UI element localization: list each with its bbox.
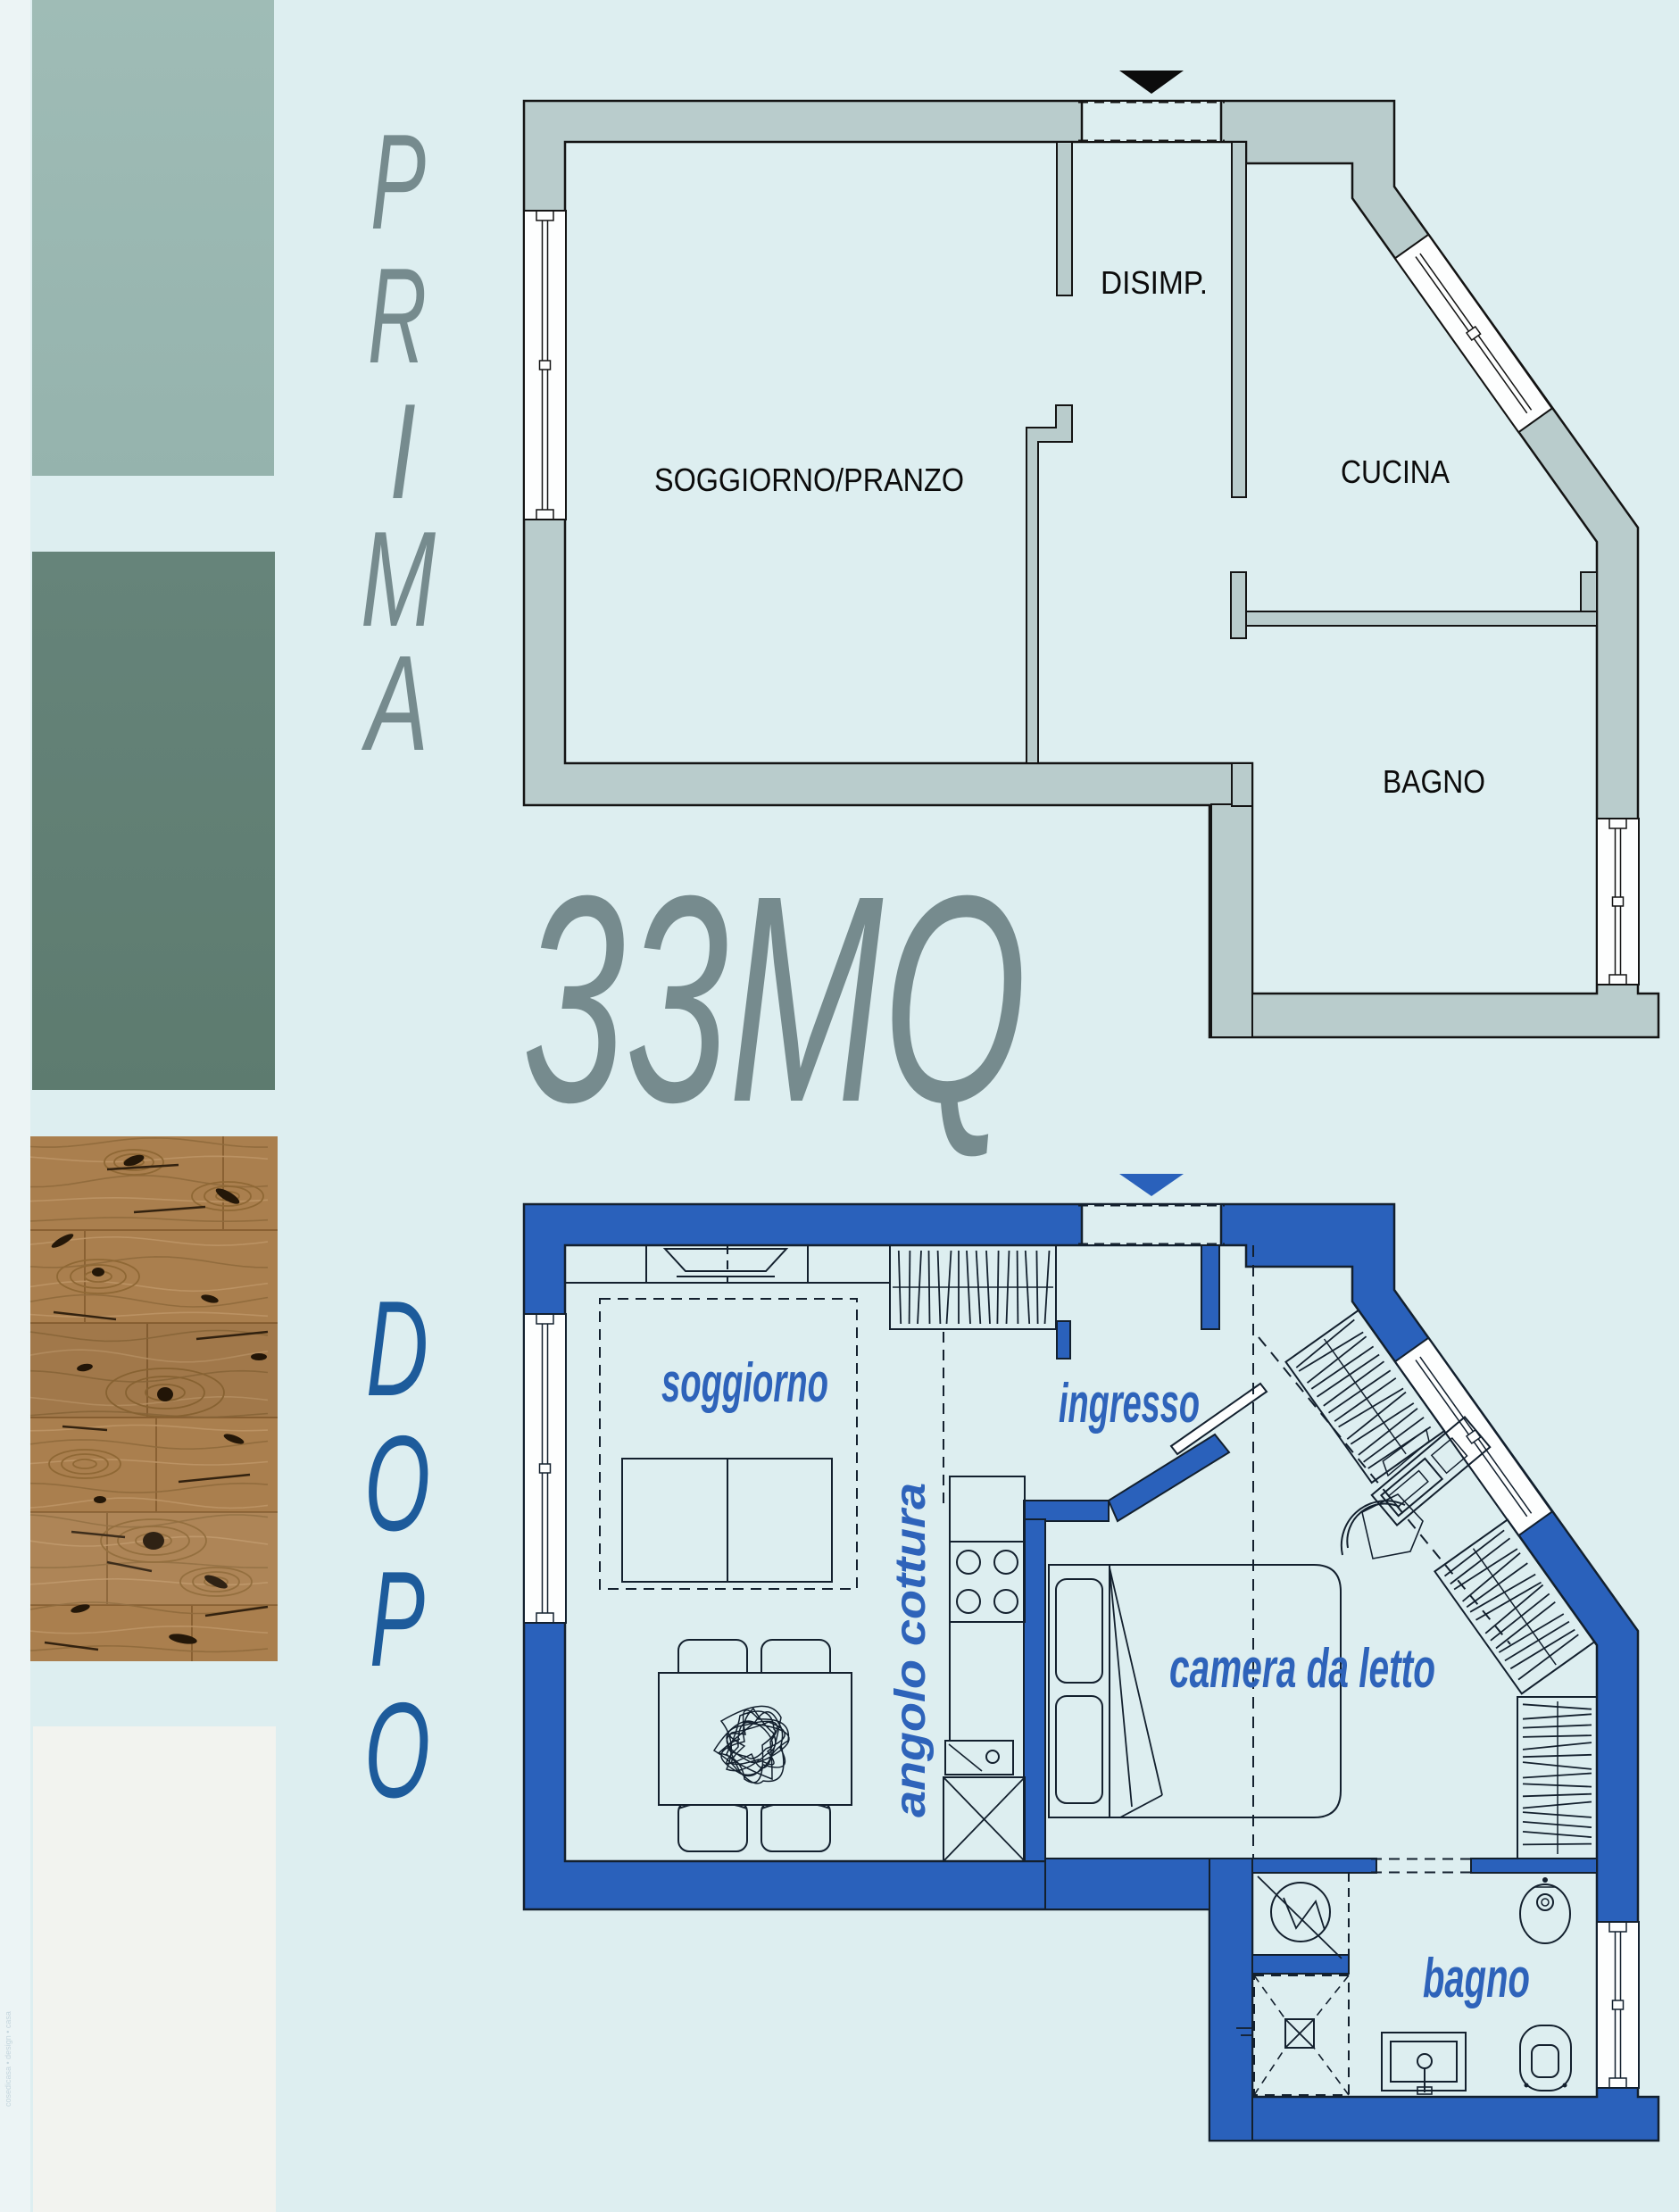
svg-text:camera da letto: camera da letto [1169, 1638, 1435, 1700]
svg-text:soggiorno: soggiorno [661, 1352, 828, 1414]
svg-text:CUCINA: CUCINA [1341, 453, 1450, 490]
svg-text:BAGNO: BAGNO [1383, 763, 1485, 800]
svg-text:A: A [361, 628, 428, 779]
svg-text:P: P [370, 106, 426, 258]
svg-text:DISIMP.: DISIMP. [1101, 264, 1208, 301]
svg-text:D: D [366, 1273, 428, 1425]
svg-text:cosedicasa • design • casa: cosedicasa • design • casa [4, 2011, 12, 2107]
svg-text:angolo cottura: angolo cottura [887, 1483, 935, 1817]
svg-text:O: O [364, 1408, 430, 1559]
svg-text:33MQ: 33MQ [522, 834, 1027, 1163]
svg-text:O: O [364, 1675, 430, 1826]
svg-text:R: R [368, 240, 427, 392]
svg-text:P: P [370, 1543, 425, 1695]
svg-text:bagno: bagno [1423, 1948, 1530, 2009]
svg-text:SOGGIORNO/PRANZO: SOGGIORNO/PRANZO [654, 462, 964, 498]
svg-text:ingresso: ingresso [1059, 1373, 1200, 1434]
